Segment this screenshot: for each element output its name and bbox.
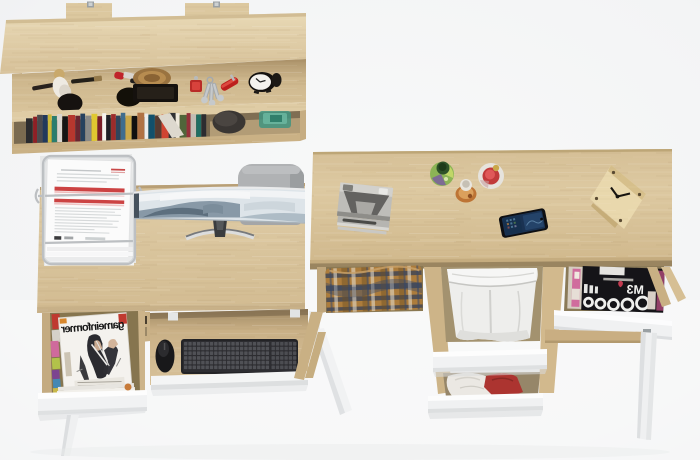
svg-text:M3: M3	[626, 283, 644, 298]
